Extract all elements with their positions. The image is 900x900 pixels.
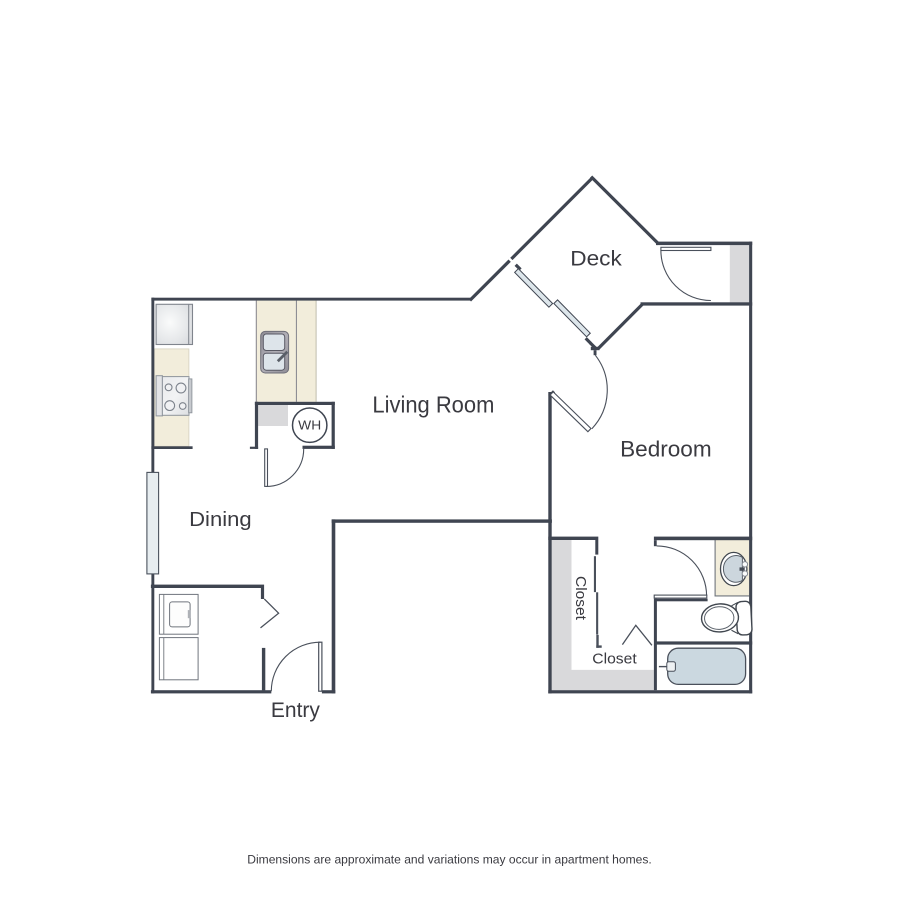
svg-text:Dimensions are approximate and: Dimensions are approximate and variation… [247, 853, 652, 867]
svg-text:Living Room: Living Room [372, 391, 494, 417]
svg-text:Bedroom: Bedroom [620, 436, 712, 461]
svg-text:Dining: Dining [189, 509, 252, 531]
svg-text:Entry: Entry [271, 699, 321, 722]
svg-text:Closet: Closet [572, 576, 588, 620]
svg-text:WH: WH [298, 417, 321, 432]
svg-text:Deck: Deck [570, 246, 622, 270]
svg-text:Closet: Closet [592, 651, 637, 667]
